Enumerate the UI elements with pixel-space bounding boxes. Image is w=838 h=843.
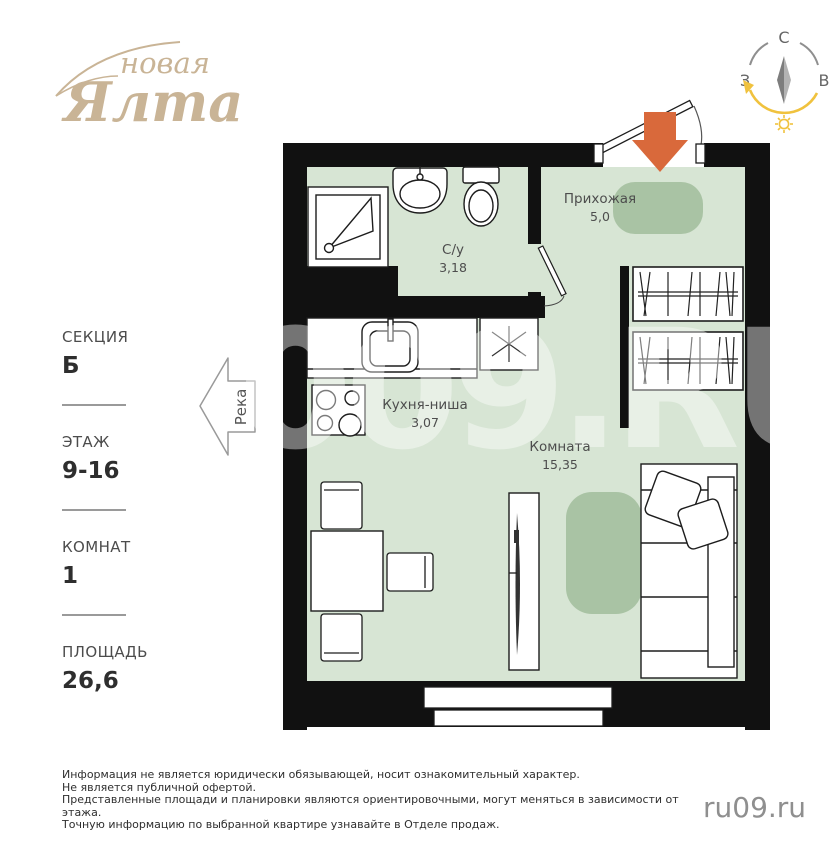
window bbox=[424, 687, 612, 726]
param-label: КОМНАТ bbox=[62, 538, 212, 556]
wardrobe-2 bbox=[633, 332, 743, 390]
disclaimer-line: Информация не является юридически обязыв… bbox=[62, 769, 682, 782]
river-arrow: Река bbox=[198, 350, 258, 464]
brand-logo: новая Ялта bbox=[52, 30, 282, 140]
river-label: Река bbox=[232, 389, 250, 426]
param-label: ЭТАЖ bbox=[62, 433, 212, 451]
room-label-room: Комната 15,35 bbox=[529, 438, 590, 474]
room-name: Прихожая bbox=[564, 190, 636, 208]
param-value: 1 bbox=[62, 563, 212, 589]
wardrobe-1 bbox=[633, 267, 743, 321]
param-value: 26,6 bbox=[62, 668, 212, 694]
param-label: СЕКЦИЯ bbox=[62, 328, 212, 346]
toilet bbox=[463, 167, 499, 226]
floor-plan-svg bbox=[270, 95, 782, 740]
room-label-hallway: Прихожая 5,0 bbox=[564, 190, 636, 226]
compass-east-label: В bbox=[819, 71, 830, 90]
site-logo: ru09.ru bbox=[703, 791, 806, 824]
param-area: ПЛОЩАДЬ 26,6 bbox=[62, 643, 212, 694]
param-section: СЕКЦИЯ Б bbox=[62, 328, 212, 379]
dining-table bbox=[311, 531, 383, 611]
divider bbox=[62, 509, 126, 511]
room-area: 15,35 bbox=[529, 456, 590, 474]
room-name: Комната bbox=[529, 438, 590, 456]
param-floor: ЭТАЖ 9-16 bbox=[62, 433, 212, 484]
disclaimer-line: Точную информацию по выбранной квартире … bbox=[62, 819, 682, 832]
room-label-bathroom: С/у 3,18 bbox=[439, 241, 467, 277]
divider bbox=[62, 404, 126, 406]
room-area: 5,0 bbox=[564, 208, 636, 226]
room-area: 3,18 bbox=[439, 259, 467, 277]
bathroom-sink bbox=[393, 166, 447, 213]
floorplan-page: новая Ялта С З В СЕКЦИЯ Б bbox=[0, 0, 838, 843]
param-value: 9-16 bbox=[62, 458, 212, 484]
param-rooms: КОМНАТ 1 bbox=[62, 538, 212, 589]
room-label-kitchen: Кухня-ниша 3,07 bbox=[382, 396, 468, 432]
room-area: 3,07 bbox=[382, 414, 468, 432]
disclaimer-line: Представленные площади и планировки явля… bbox=[62, 794, 682, 819]
bed bbox=[641, 464, 737, 678]
logo-word-2: Ялта bbox=[64, 70, 243, 134]
tv-stand bbox=[509, 493, 539, 670]
param-value: Б bbox=[62, 353, 212, 379]
entry-arrow-icon bbox=[630, 110, 694, 176]
compass-north-label: С bbox=[778, 28, 789, 47]
room-name: С/у bbox=[439, 241, 467, 259]
disclaimer-text: Информация не является юридически обязыв… bbox=[62, 769, 682, 832]
kitchen-counter bbox=[307, 318, 477, 378]
room-name: Кухня-ниша bbox=[382, 396, 468, 414]
apartment-params: СЕКЦИЯ Б ЭТАЖ 9-16 КОМНАТ 1 ПЛОЩАДЬ 26,6 bbox=[62, 328, 212, 694]
fridge bbox=[480, 318, 538, 370]
shower bbox=[308, 187, 388, 267]
param-label: ПЛОЩАДЬ bbox=[62, 643, 212, 661]
divider bbox=[62, 614, 126, 616]
stove bbox=[312, 385, 365, 436]
